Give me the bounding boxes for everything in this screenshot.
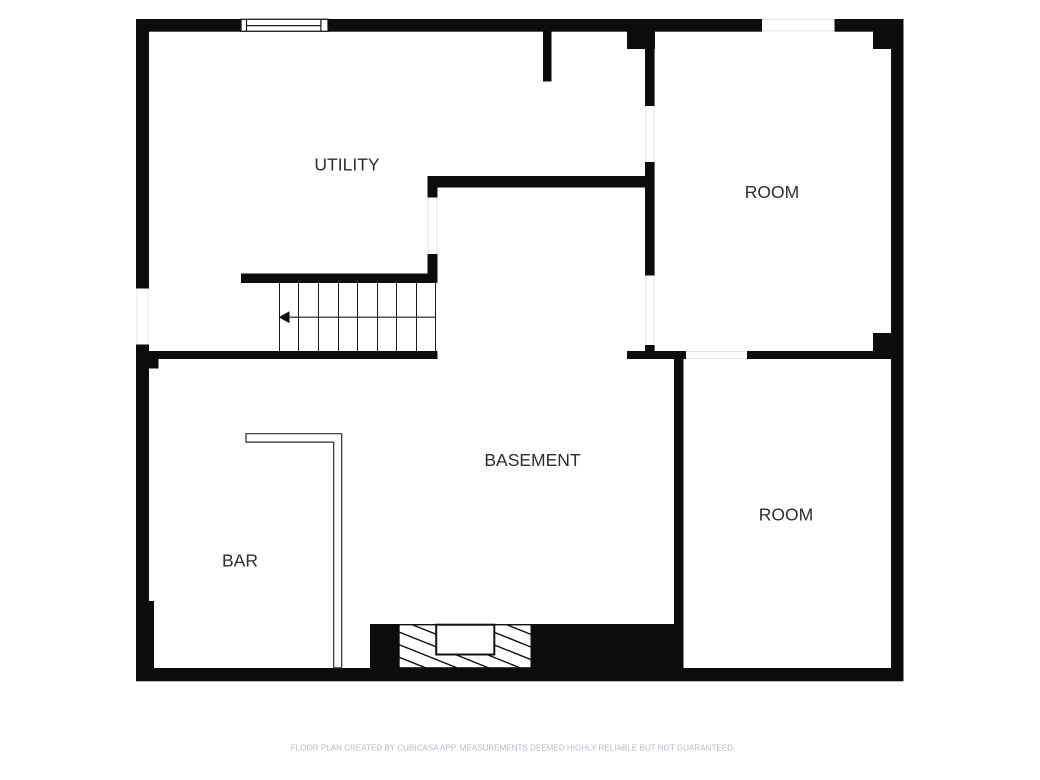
svg-text:BASEMENT: BASEMENT [484, 450, 581, 470]
svg-text:BAR: BAR [222, 551, 258, 571]
svg-text:ROOM: ROOM [745, 182, 799, 202]
svg-text:FLOOR PLAN CREATED BY CUBICASA: FLOOR PLAN CREATED BY CUBICASA APP. MEAS… [291, 744, 736, 753]
svg-text:UTILITY: UTILITY [314, 155, 379, 175]
svg-text:ROOM: ROOM [759, 505, 813, 525]
